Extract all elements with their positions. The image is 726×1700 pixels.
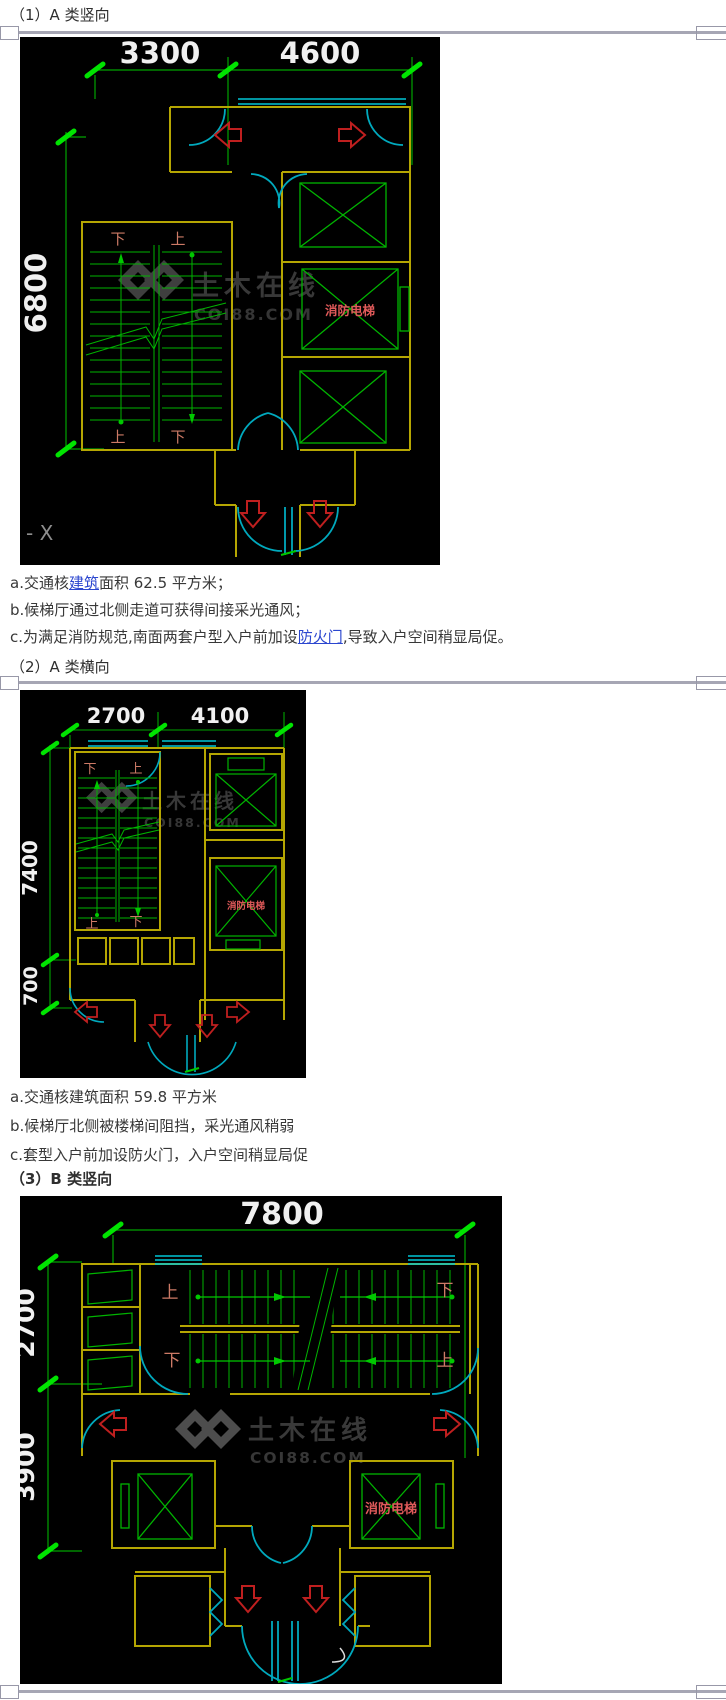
stair-label-top-right: 上 (129, 762, 142, 777)
cad-plan-a-vertical-svg: 土木在线 COI88.COM 3300 4600 6800 (20, 37, 440, 565)
dim-4600: 4600 (280, 37, 361, 70)
stair-label-top-left: 下 (110, 230, 125, 248)
dim-4100: 4100 (191, 704, 249, 728)
separator-bracket-right-1[interactable] (696, 26, 726, 40)
watermark-text-en: COI88.COM (194, 305, 313, 324)
separator-line-3 (0, 1690, 726, 1693)
fire-elevator-label: 消防电梯 (227, 900, 266, 912)
stair-label-top-right: 下 (437, 1281, 454, 1301)
cad-plan-b-vertical: 土木在线 COI88.COM 7800 2700 3900 (20, 1196, 502, 1684)
note-1c-post: ,导致入户空间稍显局促。 (343, 628, 513, 646)
dim-700: 700 (20, 966, 42, 1006)
note-1a-pre: a.交通核 (10, 574, 69, 592)
stair-label-bottom-right: 下 (170, 428, 185, 446)
watermark-text-cn: 土木在线 (142, 789, 238, 813)
dim-2700: 2700 (20, 1288, 40, 1358)
note-1c-pre: c.为满足消防规范,南面两套户型入户前加设 (10, 628, 298, 646)
cad-plan-b-vertical-svg: 土木在线 COI88.COM 7800 2700 3900 (20, 1196, 502, 1684)
note-2b: b.候梯厅北侧被楼梯间阻挡，采光通风稍弱 (10, 1115, 294, 1136)
stair-label-top-left: 下 (83, 762, 96, 777)
link-jianzhu[interactable]: 建筑 (69, 574, 99, 592)
separator-line-1 (0, 31, 726, 34)
dim-2700: 2700 (87, 704, 145, 728)
stair-label-bottom-left: 下 (164, 1351, 181, 1371)
watermark-text-cn: 土木在线 (248, 1416, 372, 1446)
note-1b: b.候梯厅通过北侧走道可获得间接采光通风； (10, 599, 309, 620)
cad-plan-a-horizontal: 土木在线 COI88.COM 2700 4100 7400 700 (20, 690, 306, 1078)
section-2-heading: （2）A 类横向 (10, 656, 110, 677)
separator-handle-left-3[interactable] (0, 1685, 19, 1699)
fire-elevator-label: 消防电梯 (325, 303, 376, 318)
separator-line-2 (0, 681, 726, 684)
link-fanghuomen[interactable]: 防火门 (298, 628, 343, 646)
stair-label-bottom-right: 上 (437, 1351, 454, 1371)
separator-handle-left-1[interactable] (0, 26, 19, 40)
cad-plan-a-horizontal-svg: 土木在线 COI88.COM 2700 4100 7400 700 (20, 690, 306, 1078)
separator-handle-left-2[interactable] (0, 676, 19, 690)
note-2c: c.套型入户前加设防火门，入户空间稍显局促 (10, 1144, 308, 1165)
note-1a-post: 面积 62.5 平方米； (99, 574, 232, 592)
stair-label-top-right: 上 (170, 230, 185, 248)
fire-elevator-label: 消防电梯 (365, 1501, 417, 1517)
dim-6800: 6800 (20, 253, 53, 334)
note-1a: a.交通核建筑面积 62.5 平方米； (10, 572, 232, 593)
watermark-text-en: COI88.COM (250, 1449, 366, 1467)
dim-7400: 7400 (20, 840, 42, 896)
axis-mark: - X (26, 521, 54, 545)
separator-bracket-right-3[interactable] (696, 1685, 726, 1699)
dim-3900: 3900 (20, 1432, 40, 1502)
note-1c: c.为满足消防规范,南面两套户型入户前加设防火门,导致入户空间稍显局促。 (10, 626, 513, 647)
cad-plan-a-vertical: 土木在线 COI88.COM 3300 4600 6800 (20, 37, 440, 565)
note-2a: a.交通核建筑面积 59.8 平方米 (10, 1086, 217, 1107)
stair-label-bottom-left: 上 (85, 917, 98, 932)
section-3-heading: （3）B 类竖向 (10, 1168, 112, 1189)
document-page: （1）A 类竖向 土木在线 COI88.COM 3300 (0, 0, 726, 1700)
stair-label-bottom-right: 下 (129, 915, 142, 930)
separator-bracket-right-2[interactable] (696, 676, 726, 690)
dim-3300: 3300 (120, 37, 201, 70)
stair-label-top-left: 上 (162, 1283, 179, 1303)
stair-label-bottom-left: 上 (110, 428, 125, 446)
section-1-heading: （1）A 类竖向 (10, 4, 110, 25)
dim-7800: 7800 (240, 1197, 324, 1232)
